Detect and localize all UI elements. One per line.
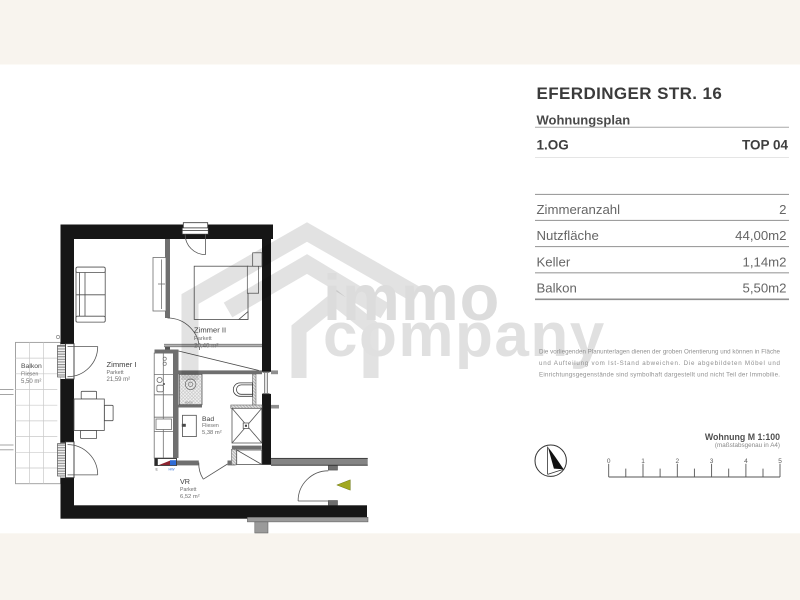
svg-text:5,38 m²: 5,38 m²	[202, 430, 222, 436]
svg-text:EFERDINGER STR. 16: EFERDINGER STR. 16	[537, 84, 723, 103]
svg-text:Nutzfläche: Nutzfläche	[537, 228, 599, 243]
svg-text:5,50 m²: 5,50 m²	[21, 379, 41, 385]
svg-text:Zimmer I: Zimmer I	[107, 360, 137, 369]
svg-text:Balkon: Balkon	[537, 281, 577, 296]
svg-text:4: 4	[744, 458, 748, 465]
svg-text:und Aufteilung vom Ist-Stand a: und Aufteilung vom Ist-Stand abweichen. …	[539, 360, 781, 367]
svg-text:Fliesen: Fliesen	[202, 423, 219, 429]
svg-text:1,14m2: 1,14m2	[743, 254, 787, 269]
svg-text:6,52 m²: 6,52 m²	[180, 494, 200, 500]
svg-text:21,59 m²: 21,59 m²	[107, 377, 131, 383]
svg-text:60/60: 60/60	[185, 401, 193, 405]
svg-text:5: 5	[778, 458, 782, 465]
svg-text:HW: HW	[169, 468, 176, 472]
svg-text:2: 2	[675, 458, 679, 465]
svg-text:Einrichtungsgegenstände sind s: Einrichtungsgegenstände sind symbolhaft …	[539, 372, 780, 379]
svg-text:0: 0	[607, 458, 611, 465]
svg-text:Bad: Bad	[202, 416, 214, 423]
svg-text:1.OG: 1.OG	[537, 138, 569, 153]
svg-text:Balkon: Balkon	[21, 363, 42, 370]
svg-text:VR: VR	[180, 477, 190, 486]
svg-text:Fliesen: Fliesen	[21, 372, 38, 378]
svg-text:Wohnungsplan: Wohnungsplan	[537, 113, 631, 128]
svg-text:44,00m2: 44,00m2	[735, 228, 786, 243]
svg-text:3: 3	[710, 458, 714, 465]
svg-text:Zimmer II: Zimmer II	[194, 326, 226, 335]
svg-text:5,50m2: 5,50m2	[743, 281, 787, 296]
svg-text:(maßstabsgenau in A4): (maßstabsgenau in A4)	[715, 442, 780, 449]
svg-text:1: 1	[641, 458, 645, 465]
svg-text:Wohnung M 1:100: Wohnung M 1:100	[705, 432, 780, 442]
svg-text:Parkett: Parkett	[180, 487, 197, 493]
svg-text:Zimmeranzahl: Zimmeranzahl	[537, 202, 621, 217]
svg-text:TOP 04: TOP 04	[742, 138, 789, 153]
svg-text:Keller: Keller	[537, 254, 571, 269]
svg-text:Parkett: Parkett	[107, 370, 125, 376]
svg-text:2: 2	[779, 202, 786, 217]
svg-text:Die vorliegenden Planunterlage: Die vorliegenden Planunterlagen dienen d…	[539, 348, 781, 355]
